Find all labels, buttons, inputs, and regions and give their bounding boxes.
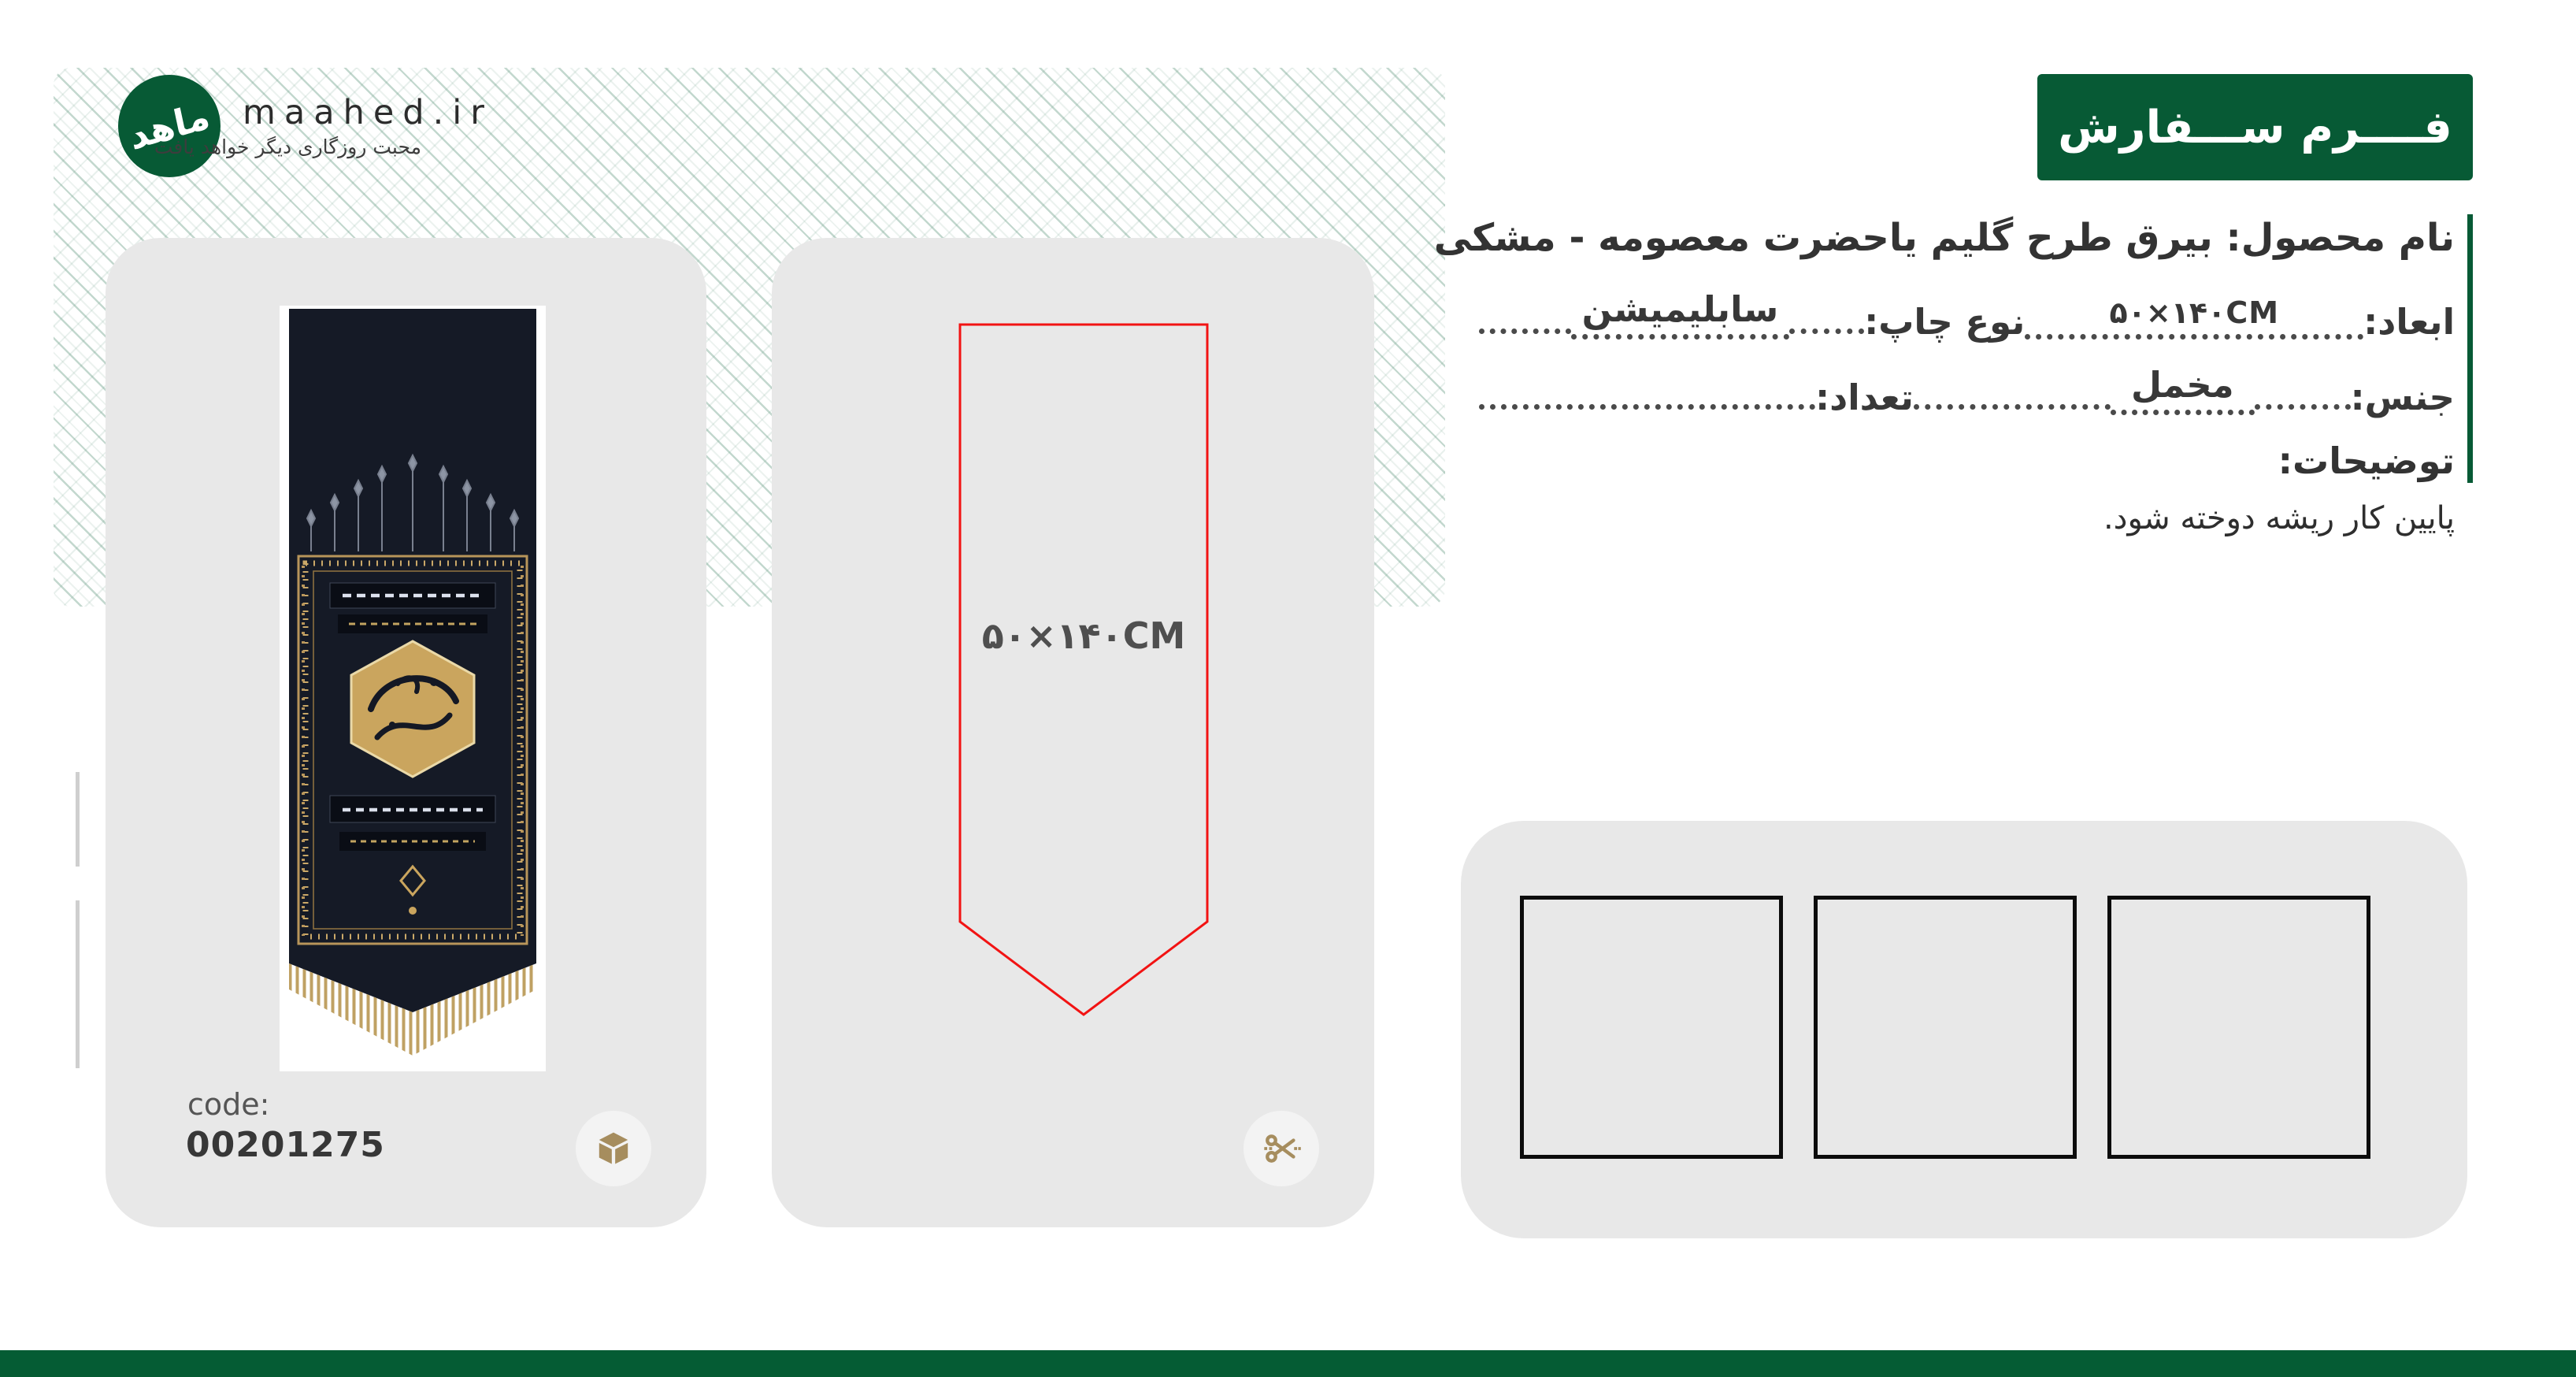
dotted-leader [1914,404,2111,410]
cut-template-card: ۵۰×۱۴۰CM [772,238,1374,1227]
footer-green-bar [0,1350,2576,1377]
brand-tagline: محبت روزگاری دیگر خواهد یافت [236,135,421,158]
dimensions-row: ابعاد: ۵۰×۱۴۰CM نوع چاپ: سابلیمیشن [1479,288,2455,343]
dimensions-value: ۵۰×۱۴۰CM [2025,295,2363,340]
pennant-cutline [958,323,1209,1016]
print-slot-1 [1520,896,1783,1159]
dotted-leader [2255,404,2351,410]
product-name-value: بیرق طرح گلیم یاحضرت معصومه - مشکی [1434,216,2213,260]
brand-site-url: maahed.ir [243,93,493,132]
dimensions-label: ابعاد: [2363,301,2455,343]
material-value: مخمل [2111,364,2255,415]
package-icon [593,1128,634,1169]
print-slot-3 [2107,896,2370,1159]
product-code-value: 00201275 [186,1125,385,1165]
scissors-icon [1262,1129,1301,1168]
order-form-title: فــــرم ســـفارش [2058,102,2452,154]
material-row: جنس: مخمل تعداد: [1479,364,2455,419]
brand-logo: ماهد [118,75,221,177]
quantity-value-line [1479,404,1815,410]
dotted-leader [1479,328,1571,334]
order-form-main: نام محصول: بیرق طرح گلیم یاحضرت معصومه -… [1479,214,2473,483]
print-type-value: سابلیمیشن [1571,288,1790,340]
material-label: جنس: [2351,377,2455,419]
crop-mark [76,772,80,867]
template-size-label: ۵۰×۱۴۰CM [958,614,1209,657]
package-icon-badge [576,1111,651,1186]
quantity-label: تعداد: [1815,377,1914,419]
notes-value: پایین کار ریشه دوخته شود. [1479,500,2473,536]
order-form-header: فــــرم ســـفارش [2037,74,2473,180]
product-name-row: نام محصول: بیرق طرح گلیم یاحضرت معصومه -… [1479,214,2455,262]
scissors-icon-badge [1244,1111,1319,1186]
print-type-label: نوع چاپ: [1864,301,2025,343]
crop-mark [76,900,80,1068]
print-slot-2 [1814,896,2077,1159]
order-form-fields: نام محصول: بیرق طرح گلیم یاحضرت معصومه -… [1479,214,2473,536]
product-photo [280,306,546,1071]
product-preview-card: code: 00201275 [106,238,706,1227]
product-code-label: code: [187,1087,269,1122]
dotted-leader [1789,328,1864,334]
order-form-page: ماهد maahed.ir محبت روزگاری دیگر خواهد ی… [0,0,2576,1377]
print-slots [1520,896,2370,1159]
product-name-label: نام محصول: [2226,216,2455,260]
print-slots-card [1461,821,2467,1238]
notes-label: توضیحات: [1479,440,2455,483]
